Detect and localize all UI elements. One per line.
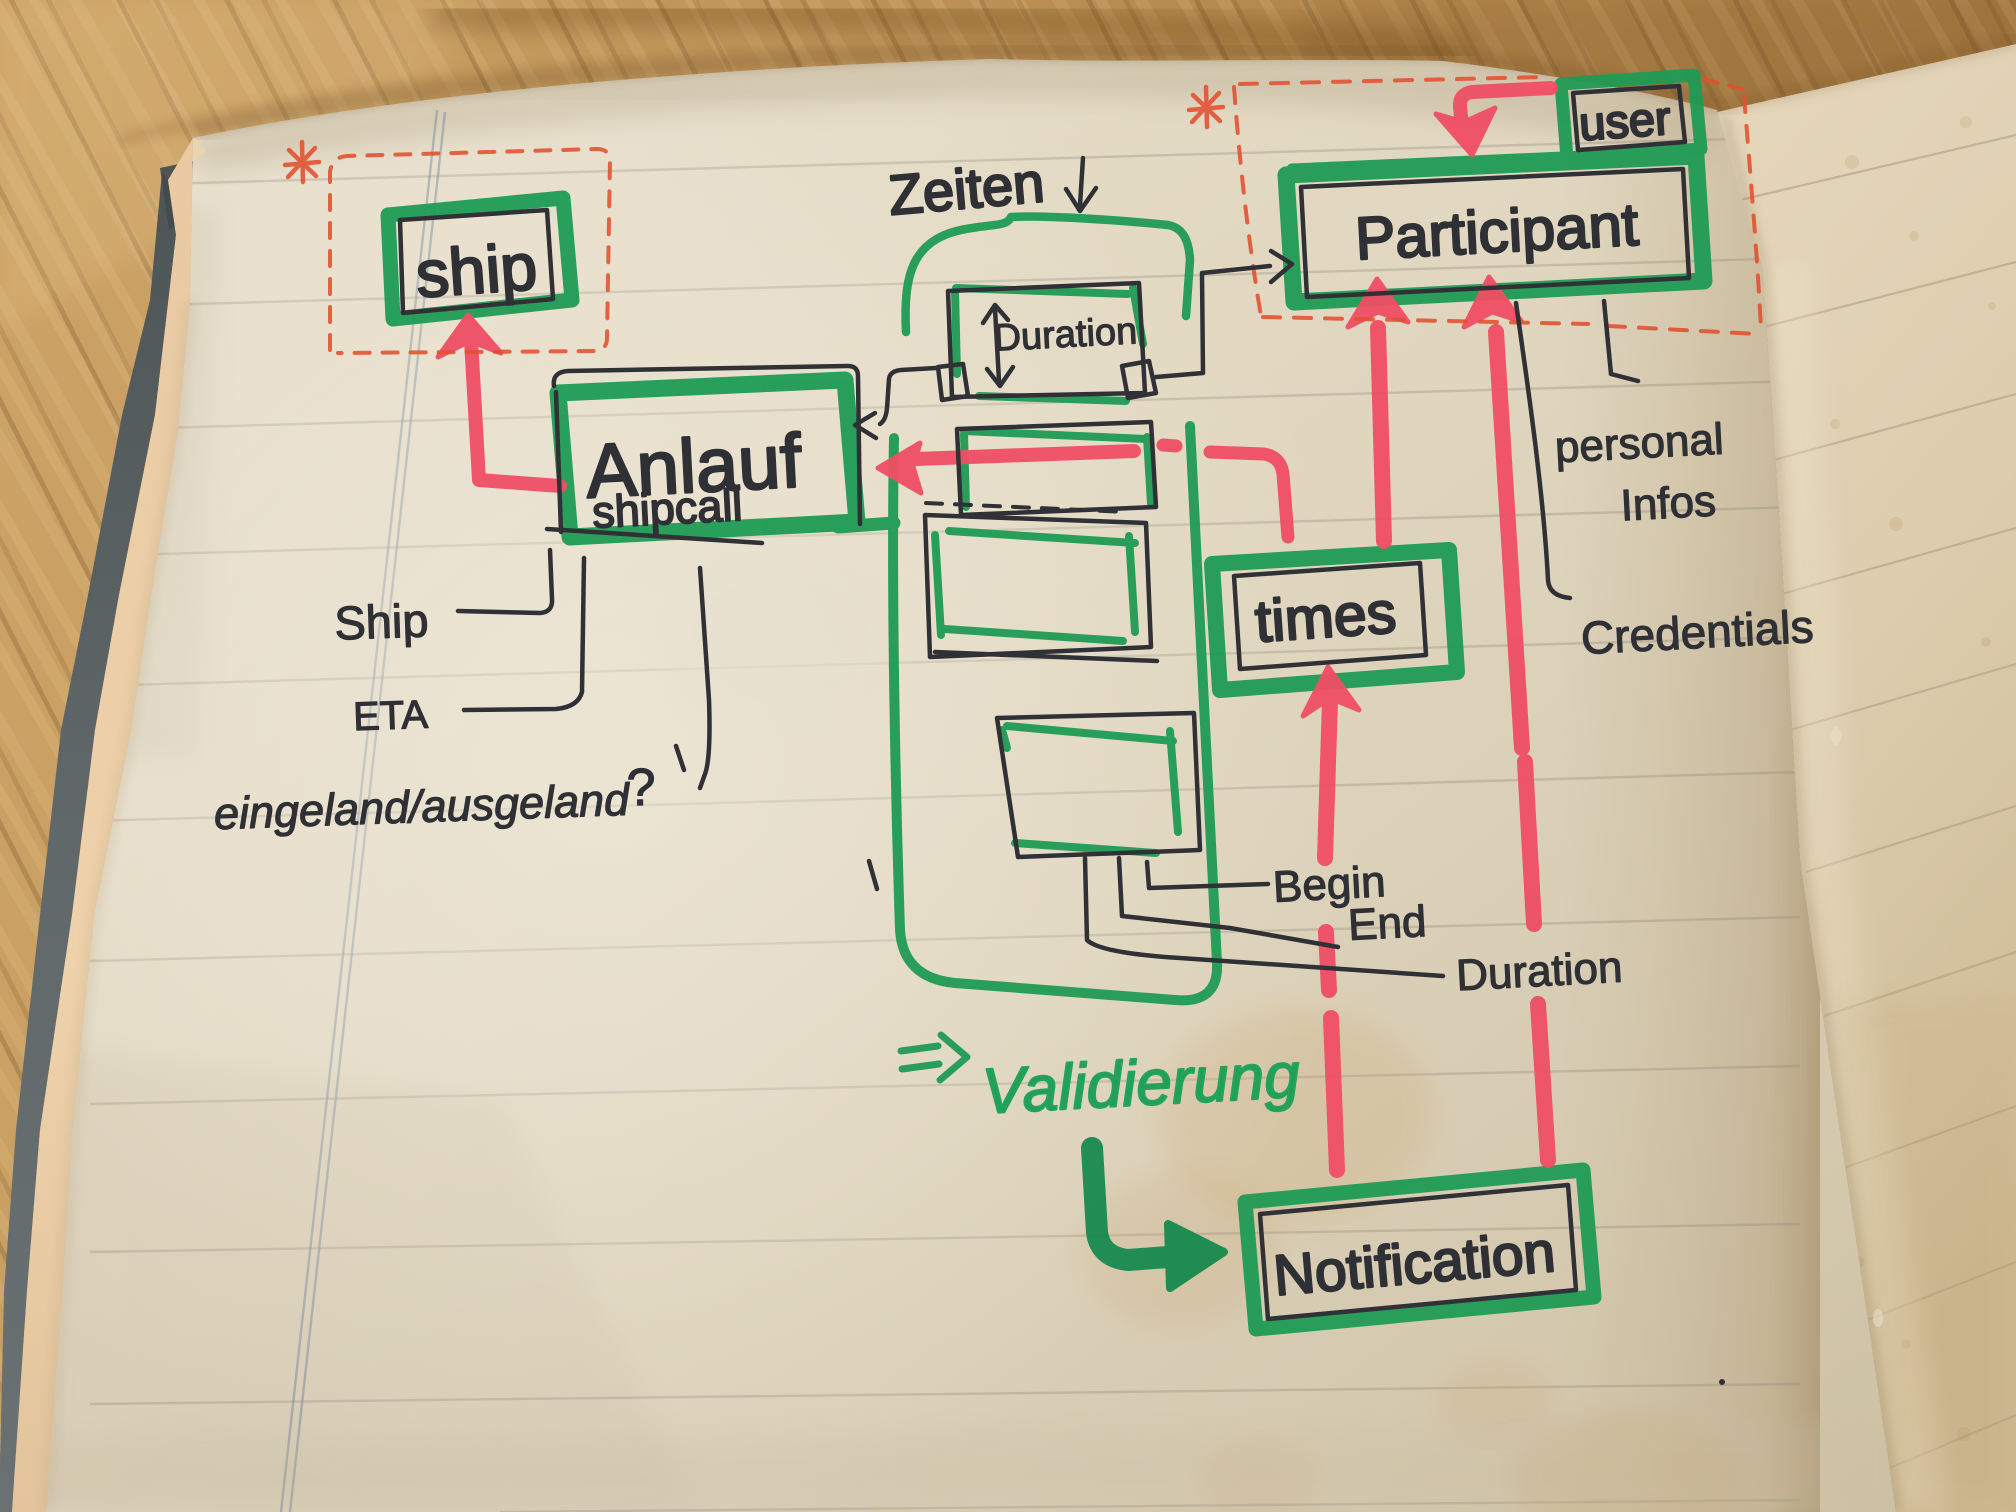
svg-text:?: ? — [627, 759, 656, 817]
svg-text:Duration: Duration — [993, 310, 1139, 359]
svg-text:personal: personal — [1554, 415, 1725, 473]
svg-text:Infos: Infos — [1619, 477, 1717, 531]
svg-text:Duration: Duration — [1455, 943, 1624, 1001]
svg-text:Ship: Ship — [333, 593, 429, 649]
svg-text:ETA: ETA — [352, 693, 429, 740]
svg-text:user: user — [1577, 91, 1672, 150]
svg-text:shipcall: shipcall — [591, 479, 744, 538]
svg-text:ship: ship — [413, 229, 539, 311]
svg-text:End: End — [1347, 897, 1428, 950]
svg-text:times: times — [1253, 579, 1398, 655]
